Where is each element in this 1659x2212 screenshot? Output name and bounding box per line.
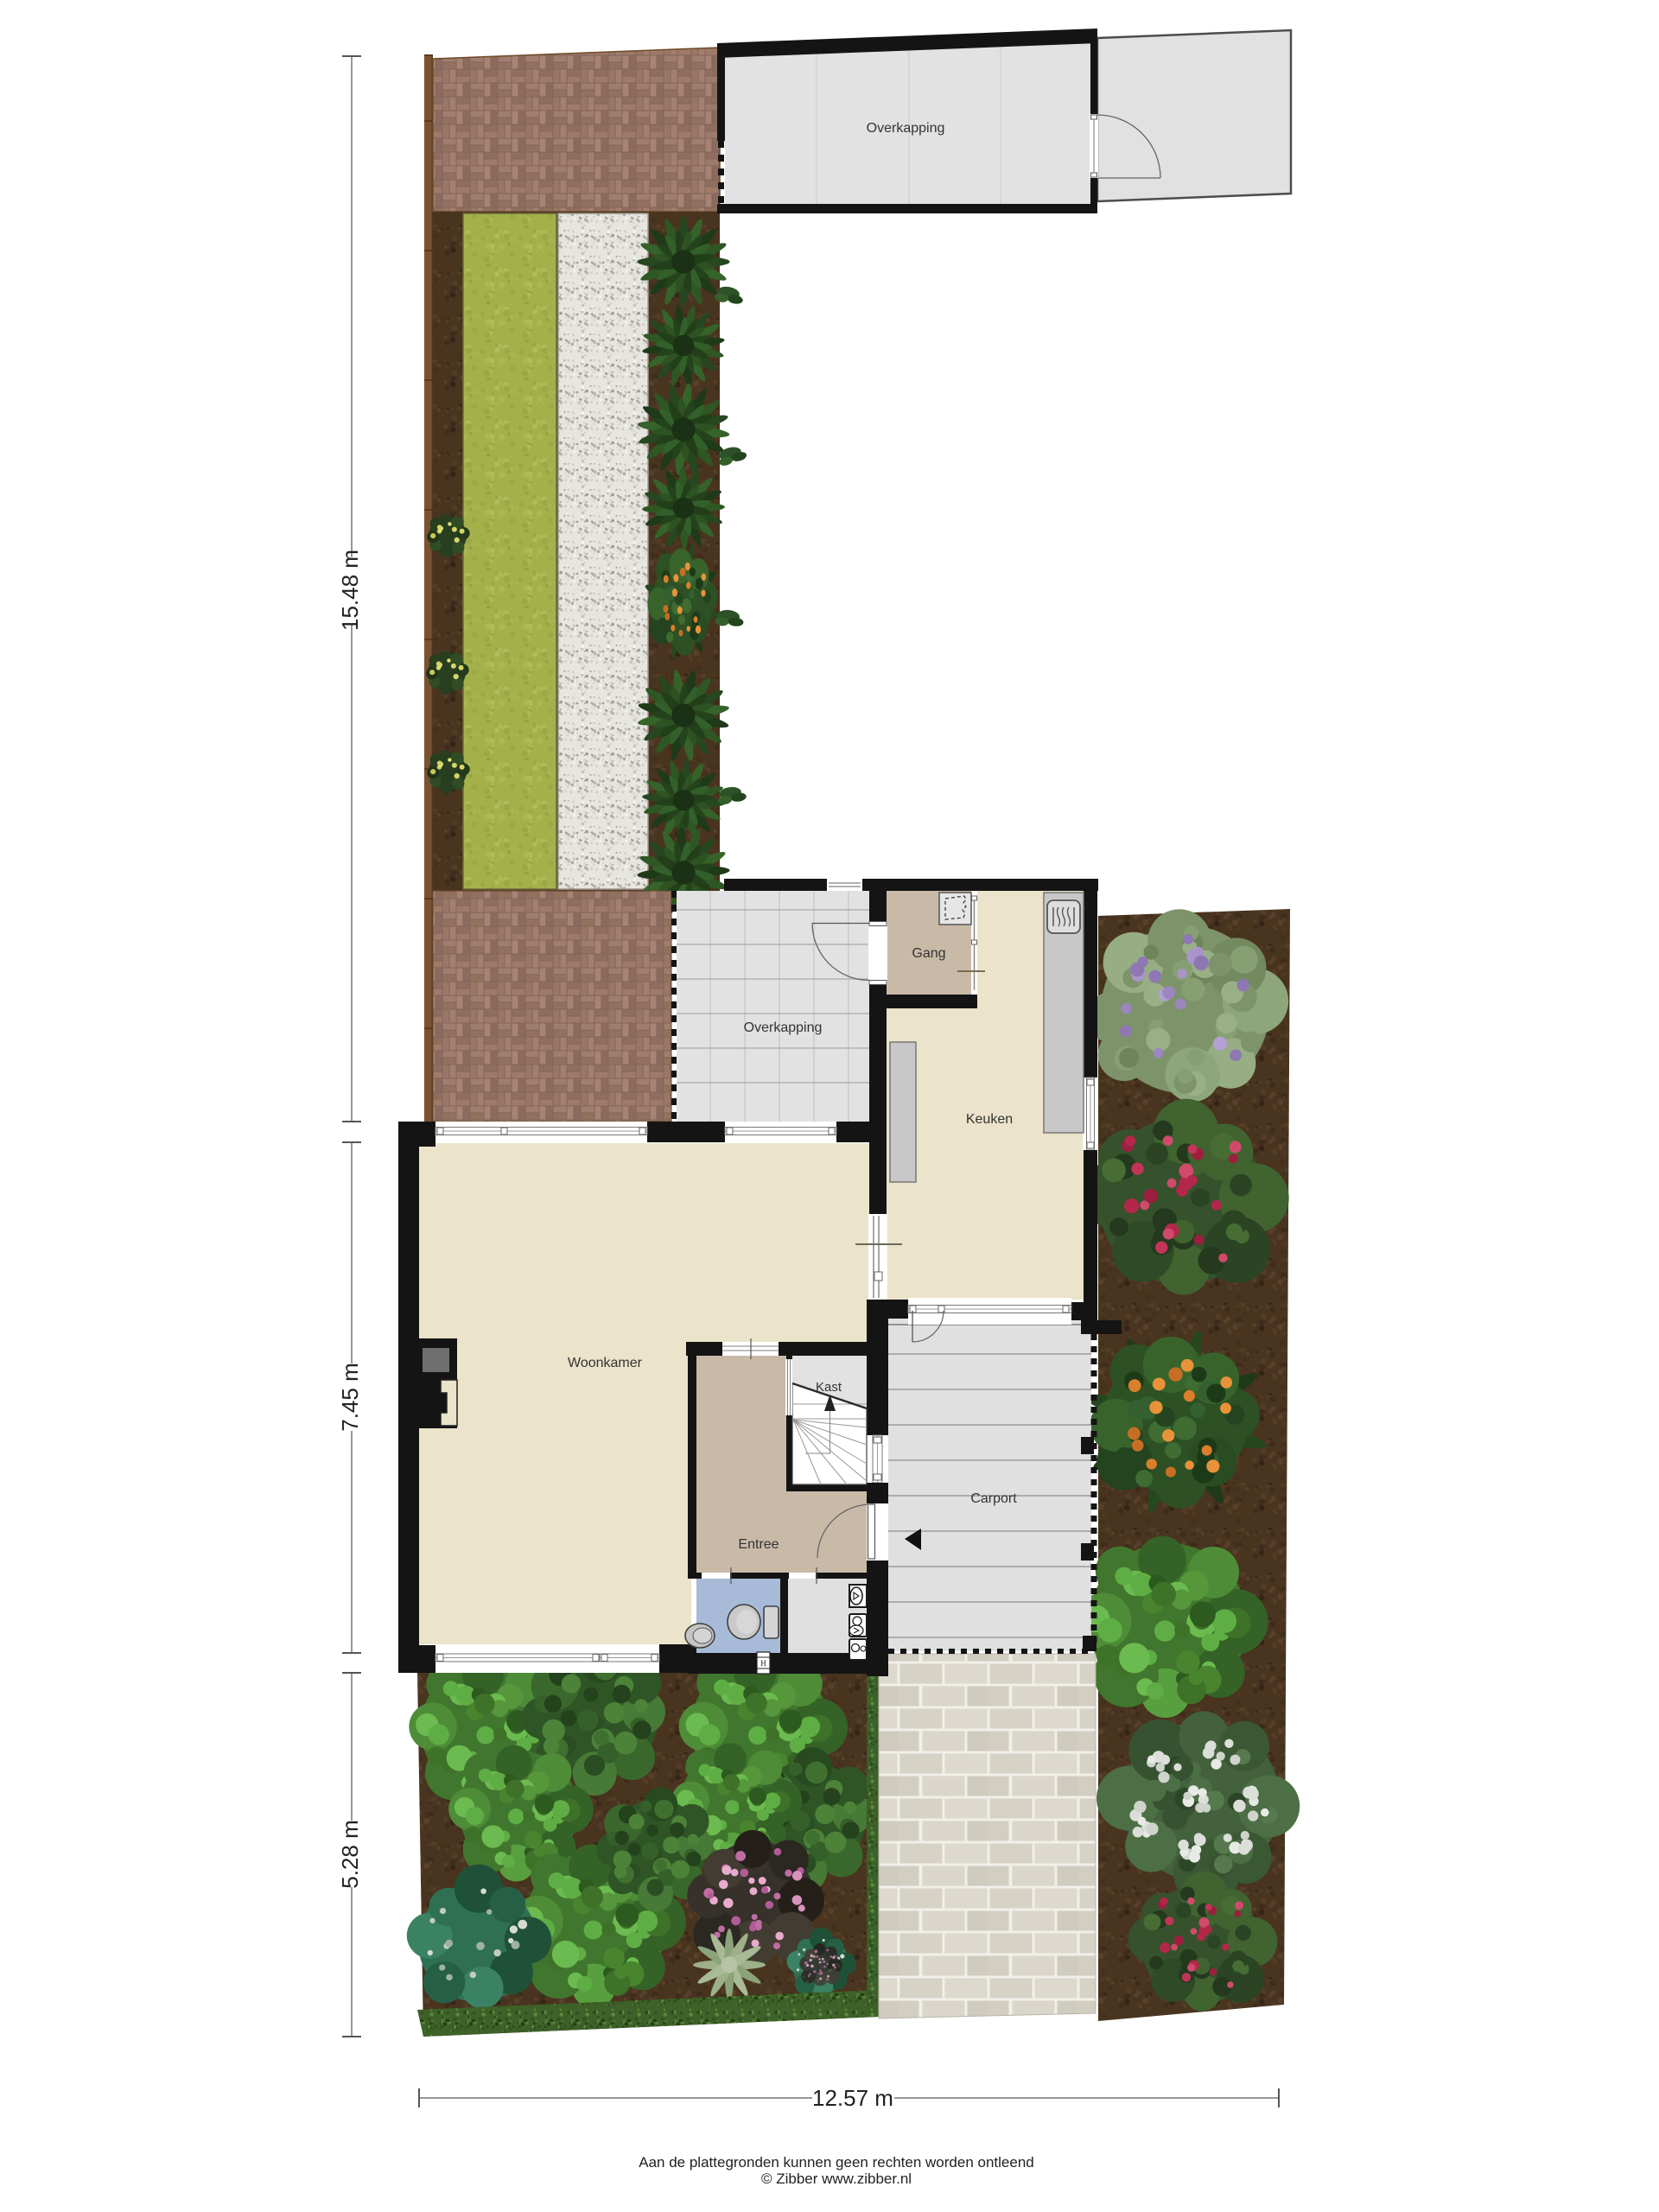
svg-text:Entree: Entree xyxy=(738,1537,779,1552)
svg-text:Kast: Kast xyxy=(816,1380,842,1395)
svg-text:7.45 m: 7.45 m xyxy=(337,1363,363,1432)
svg-text:Carport: Carport xyxy=(970,1491,1017,1506)
svg-text:H: H xyxy=(760,1659,766,1668)
svg-text:Aan de plattegronden kunnen ge: Aan de plattegronden kunnen geen rechten… xyxy=(639,2154,1033,2171)
svg-text:Overkapping: Overkapping xyxy=(867,121,945,136)
svg-text:12.57 m: 12.57 m xyxy=(812,2085,893,2111)
svg-text:Keuken: Keuken xyxy=(966,1112,1013,1127)
svg-text:Woonkamer: Woonkamer xyxy=(568,1356,643,1370)
svg-text:Gang: Gang xyxy=(912,946,945,961)
svg-text:15.48 m: 15.48 m xyxy=(337,550,363,631)
svg-text:Overkapping: Overkapping xyxy=(744,1020,823,1035)
svg-text:© Zibber www.zibber.nl: © Zibber www.zibber.nl xyxy=(761,2171,912,2187)
svg-text:5.28 m: 5.28 m xyxy=(337,1820,363,1889)
